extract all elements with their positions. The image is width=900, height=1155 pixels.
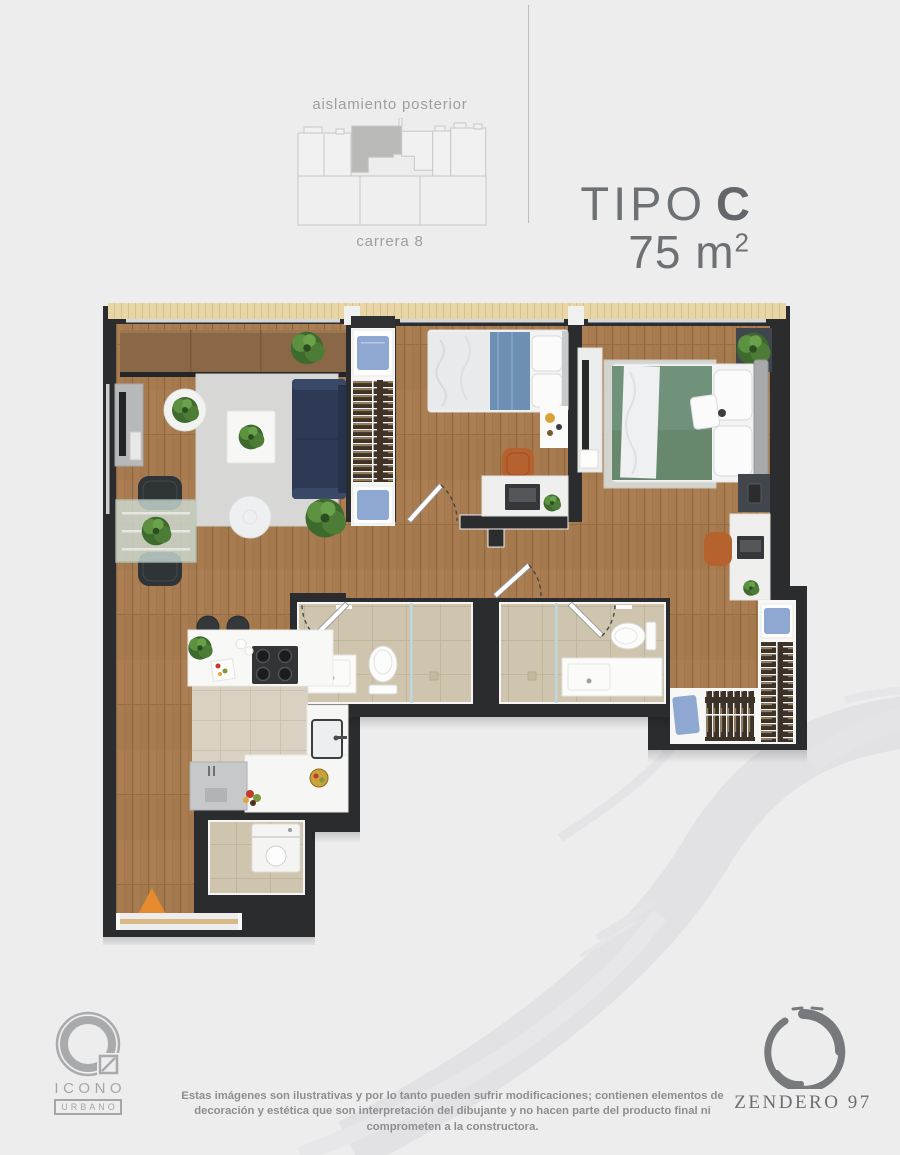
- folded-shirt: [672, 695, 700, 735]
- header-divider: [528, 5, 529, 223]
- facade-wood-strip: [108, 303, 786, 319]
- icono-urbano-wordmark: ICONO URBANO: [48, 1080, 128, 1115]
- fridge: [190, 762, 247, 810]
- vanity: [562, 658, 662, 696]
- unit-type-label: TIPO: [580, 177, 706, 230]
- tv-icon: [119, 392, 126, 456]
- blue-blanket: [490, 332, 530, 410]
- floor-plan: [100, 300, 810, 945]
- shower-drain: [528, 672, 536, 680]
- towel-bar: [616, 605, 632, 609]
- closet-floor: [670, 596, 758, 697]
- pillow: [714, 426, 752, 476]
- unit-type-value: C: [716, 177, 750, 230]
- fruit-bowl: [310, 769, 328, 787]
- pillow: [532, 374, 562, 407]
- laundry: [252, 824, 300, 872]
- bedroom1-wardrobe: [351, 316, 395, 526]
- site-location-diagram: [294, 118, 490, 230]
- folded-shirt: [357, 336, 389, 370]
- icono-urbano-logo: [52, 1010, 124, 1082]
- kitchen-sink: [312, 720, 347, 758]
- accent-pillow: [690, 394, 720, 429]
- shower-glass: [410, 603, 413, 703]
- unit-area-exponent: 2: [735, 228, 750, 258]
- pouf: [229, 496, 271, 538]
- site-diagram-bottom-label: carrera 8: [260, 233, 520, 250]
- single-bed: [428, 330, 568, 412]
- closet-unit-bottom-rail: [702, 688, 758, 744]
- entry-door: [120, 919, 238, 924]
- unit-title: TIPOC 75 m2: [540, 180, 750, 275]
- highlighted-unit: [352, 126, 402, 172]
- unit-area-value: 75 m: [628, 226, 734, 278]
- disclaimer-text: Estas imágenes son ilustrativas y por lo…: [160, 1089, 745, 1135]
- closet-unit-bottom-left: [670, 688, 702, 744]
- pillow: [532, 336, 562, 371]
- cooktop: [252, 646, 298, 684]
- hall-wall-stub: [488, 529, 504, 547]
- tv-icon: [582, 360, 589, 452]
- toilet: [369, 646, 397, 694]
- unit-area-line: 75 m2: [540, 229, 750, 275]
- shower-glass: [555, 603, 558, 703]
- headboard: [754, 360, 768, 482]
- bedroom1-bottom-wall: [460, 515, 568, 529]
- zendero-wordmark: ZENDERO 97: [728, 1092, 878, 1114]
- icono-label: ICONO: [48, 1080, 128, 1097]
- nightstand: [540, 406, 568, 448]
- zendero-logo: [755, 1005, 851, 1089]
- flyer-page: aislamiento posterior carrera 8: [0, 0, 900, 1155]
- counter: [245, 755, 348, 812]
- unit-type-line: TIPOC: [540, 180, 750, 227]
- folded-shirt: [357, 490, 389, 520]
- closet-unit-right: [758, 600, 796, 744]
- office-chair: [704, 532, 732, 566]
- urbano-label: URBANO: [54, 1099, 122, 1115]
- hallway-floor: [346, 522, 582, 598]
- folded-shirt: [764, 608, 790, 634]
- site-diagram-top-label: aislamiento posterior: [260, 96, 520, 113]
- shower-drain: [430, 672, 438, 680]
- sofa: [292, 379, 346, 499]
- toilet: [611, 622, 656, 650]
- double-bed: [612, 360, 768, 482]
